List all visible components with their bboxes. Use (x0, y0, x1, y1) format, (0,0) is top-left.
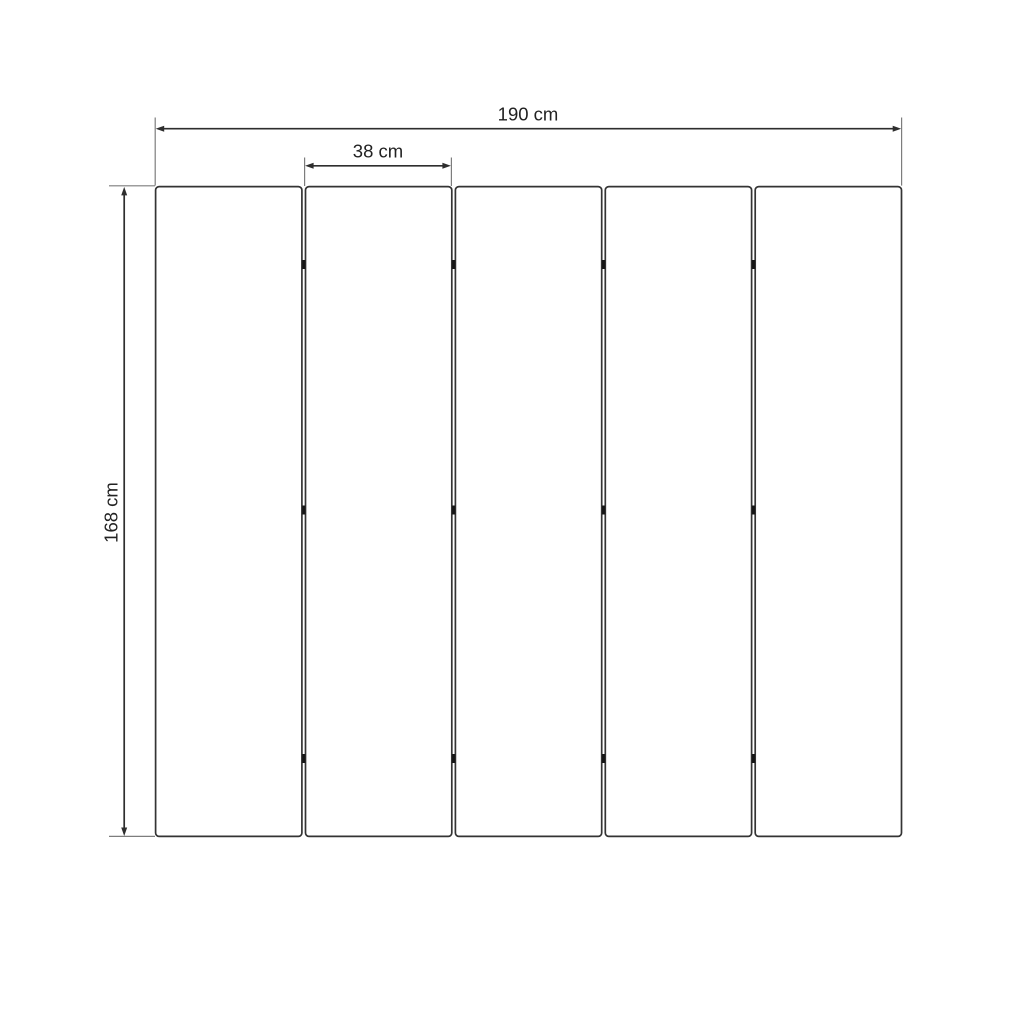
svg-text:190 cm: 190 cm (498, 104, 559, 125)
svg-text:168 cm: 168 cm (101, 482, 122, 543)
svg-text:38 cm: 38 cm (353, 141, 403, 162)
